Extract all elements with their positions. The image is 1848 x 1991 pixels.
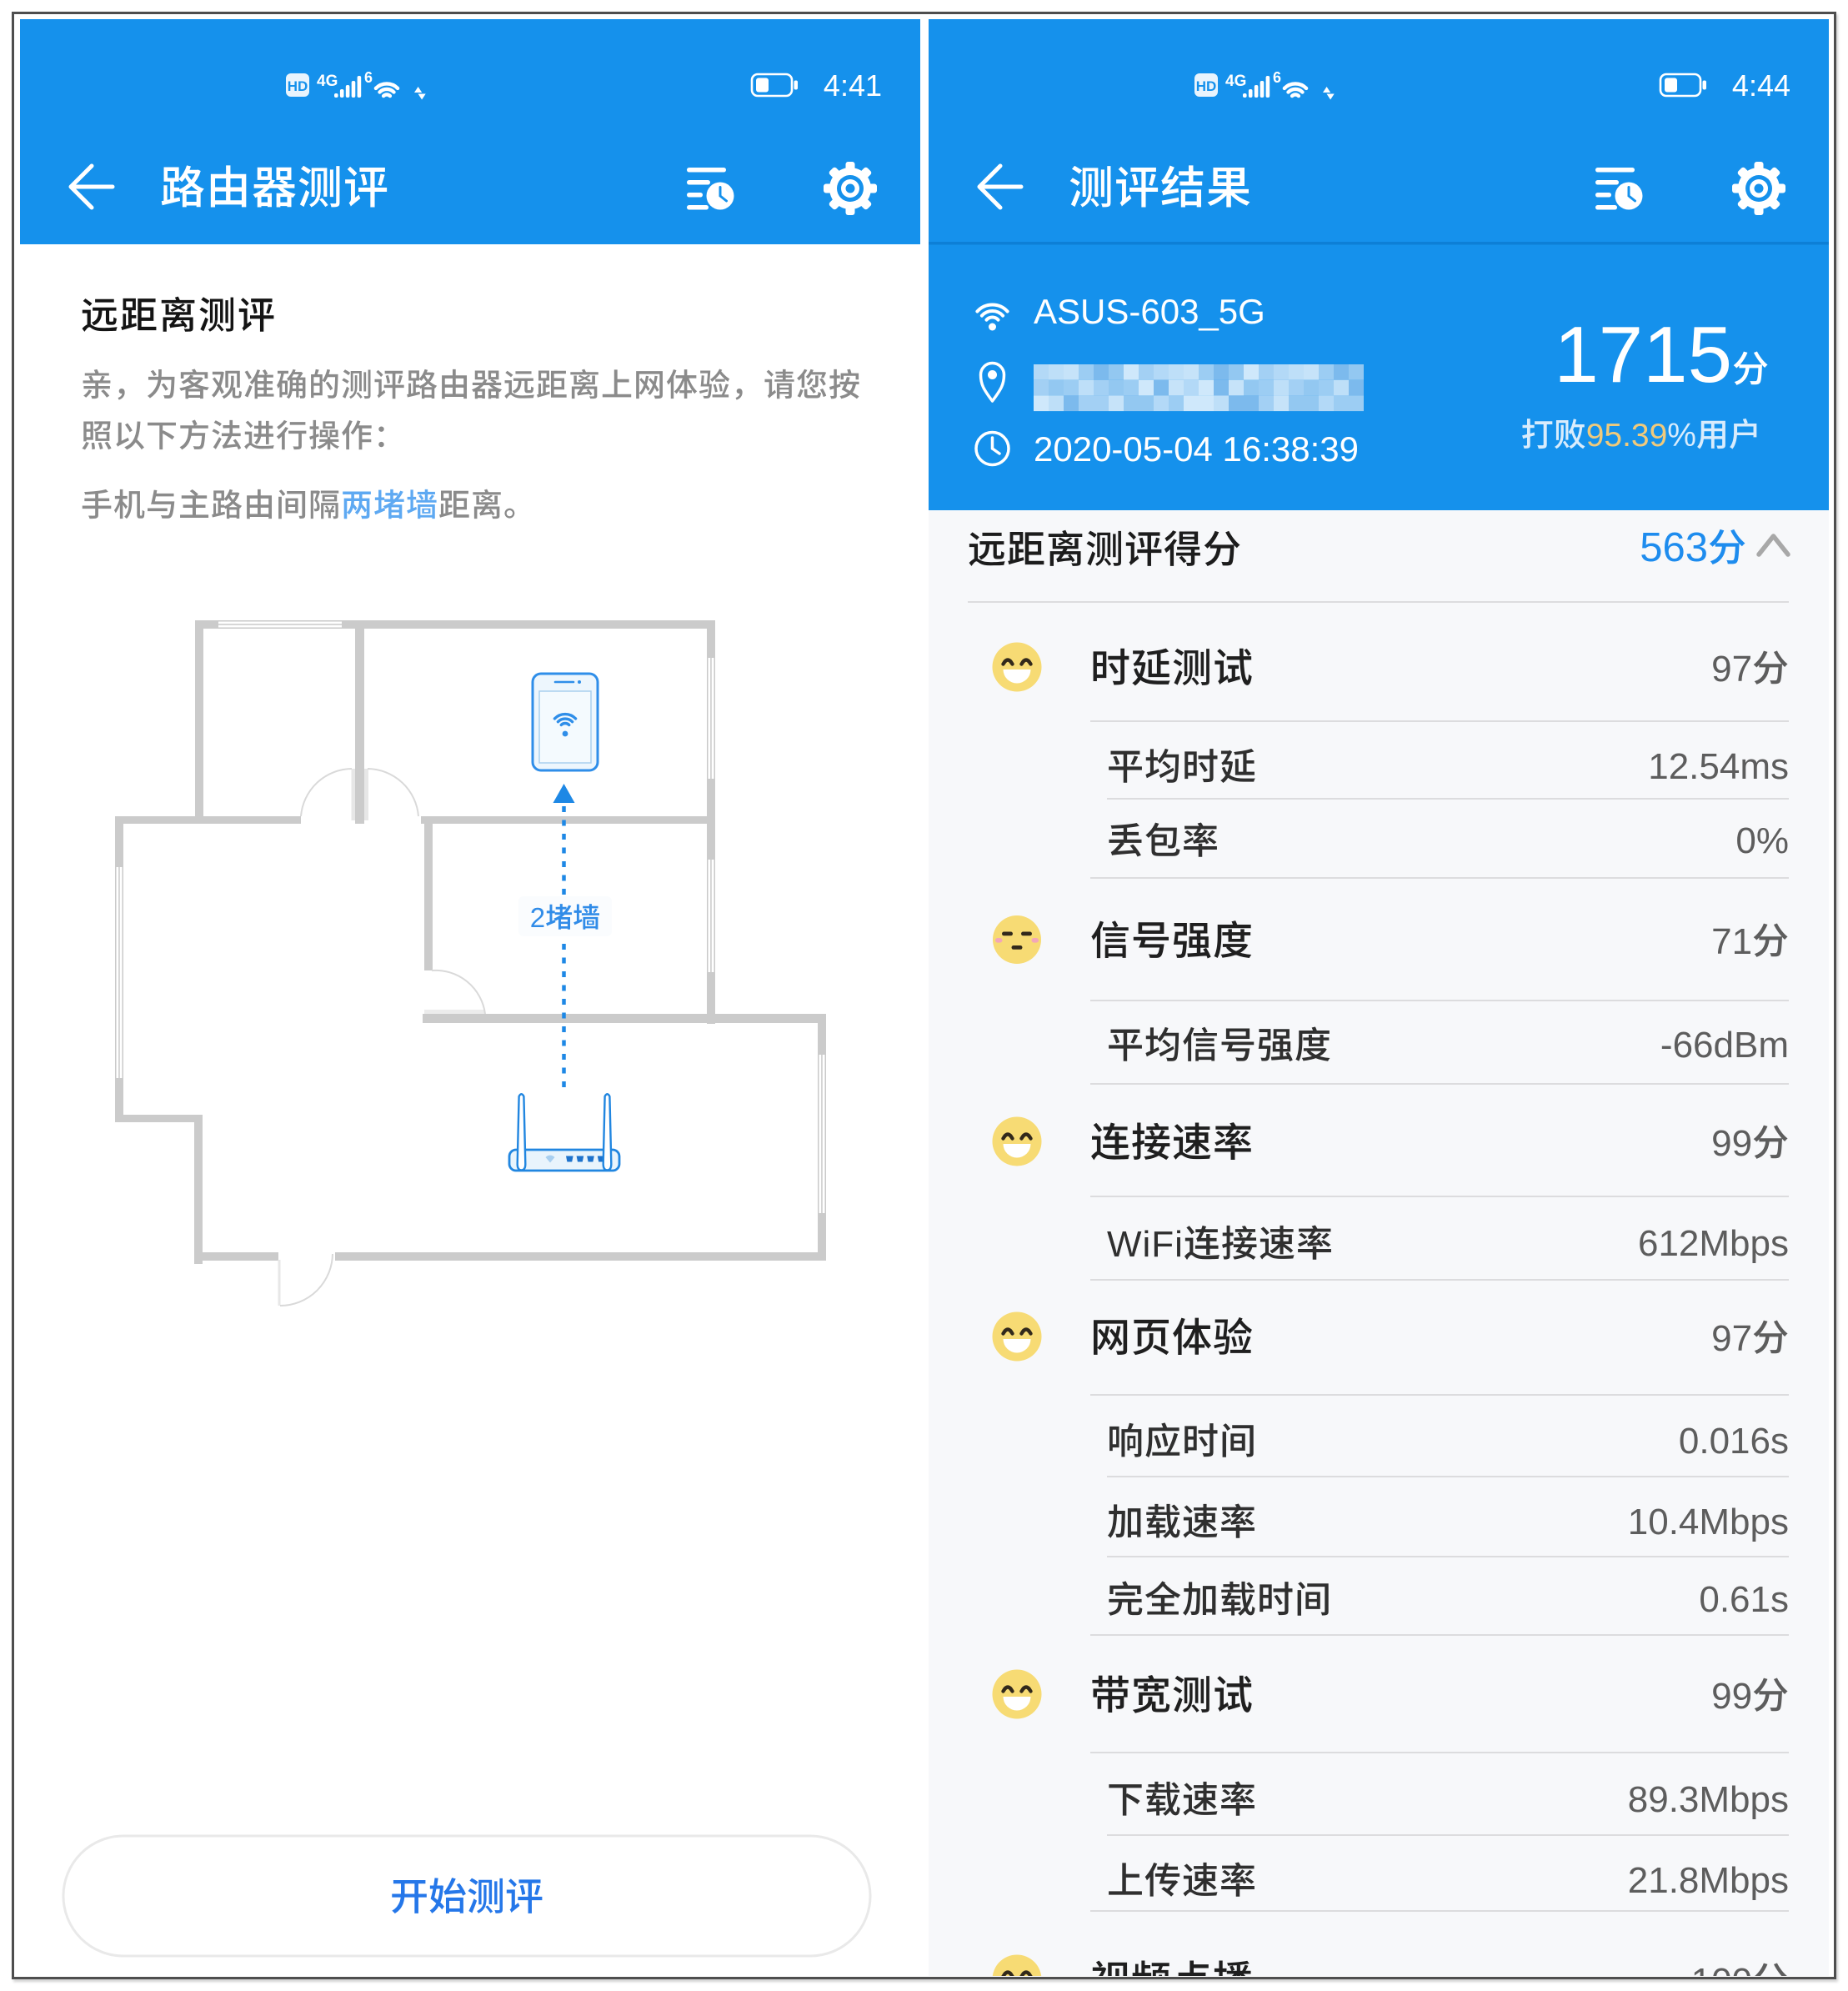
svg-text:21.8Mbps: 21.8Mbps bbox=[1628, 1860, 1789, 1901]
svg-text:2020-05-04 16:38:39: 2020-05-04 16:38:39 bbox=[1034, 429, 1359, 469]
svg-text:0.016s: 0.016s bbox=[1679, 1421, 1789, 1462]
svg-text:99: 99 bbox=[1711, 1123, 1752, 1164]
svg-text:6: 6 bbox=[1273, 69, 1281, 86]
svg-text:-66dBm: -66dBm bbox=[1660, 1025, 1789, 1066]
svg-text:0.61s: 0.61s bbox=[1699, 1579, 1789, 1620]
svg-text:HD: HD bbox=[1196, 78, 1217, 94]
svg-text:563: 563 bbox=[1640, 525, 1708, 570]
svg-text:12.54ms: 12.54ms bbox=[1648, 746, 1789, 787]
svg-text:4G: 4G bbox=[317, 73, 338, 90]
svg-text:HD: HD bbox=[288, 78, 308, 94]
svg-text:4:44: 4:44 bbox=[1732, 68, 1790, 103]
svg-text:WiFi: WiFi bbox=[1107, 1224, 1184, 1265]
svg-text:4G: 4G bbox=[1225, 73, 1246, 90]
svg-text:99: 99 bbox=[1711, 1676, 1752, 1717]
svg-text:95.39: 95.39 bbox=[1586, 418, 1668, 454]
svg-text:89.3Mbps: 89.3Mbps bbox=[1628, 1779, 1789, 1820]
svg-text:612Mbps: 612Mbps bbox=[1638, 1223, 1789, 1264]
svg-text:ASUS-603_5G: ASUS-603_5G bbox=[1034, 292, 1265, 331]
svg-text:4:41: 4:41 bbox=[824, 68, 882, 103]
svg-text:0%: 0% bbox=[1735, 820, 1789, 861]
svg-text:2: 2 bbox=[530, 902, 545, 933]
svg-text:100: 100 bbox=[1691, 1961, 1752, 1976]
svg-text:1715: 1715 bbox=[1554, 310, 1732, 399]
svg-text:97: 97 bbox=[1711, 649, 1752, 690]
svg-text:10.4Mbps: 10.4Mbps bbox=[1628, 1502, 1789, 1542]
svg-text:97: 97 bbox=[1711, 1318, 1752, 1359]
svg-text:%: % bbox=[1667, 418, 1696, 454]
svg-text:71: 71 bbox=[1711, 921, 1752, 962]
svg-text:6: 6 bbox=[364, 69, 373, 86]
